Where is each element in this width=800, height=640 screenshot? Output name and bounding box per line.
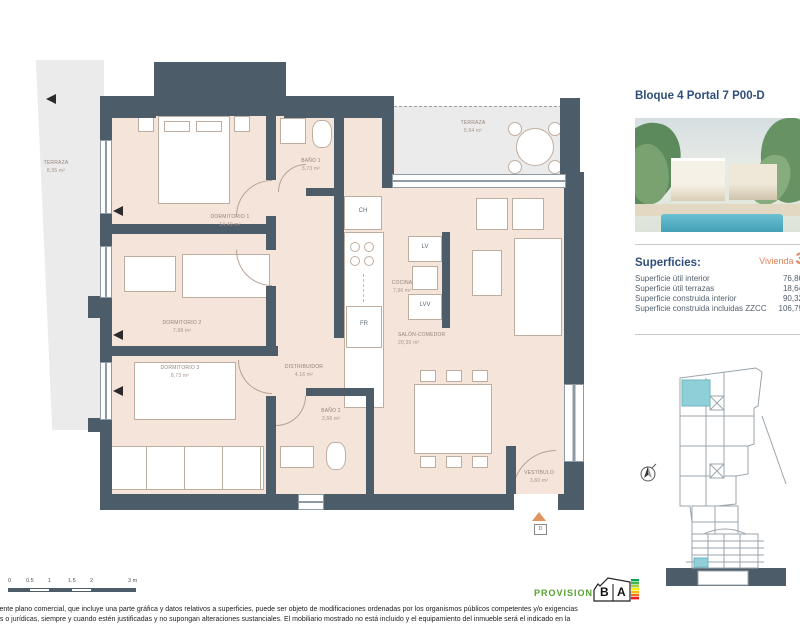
chair [446,370,462,382]
disclaimer-line: as o jurídicas, siempre y cuando estén j… [0,616,570,623]
wall [442,232,450,328]
hob [350,256,360,266]
bed [124,256,176,292]
highlighted-unit [682,380,710,406]
surface-row: Superficie útil interior76,86 [635,274,800,284]
svg-text:B: B [600,585,609,599]
window [100,140,112,214]
energy-label-icon: B A [592,576,642,603]
surface-row: Superficie construida incluidas ZZCC106,… [635,304,800,314]
sofa [514,238,562,336]
room-label-salon-comedor: SALÓN-COMEDOR20,30 m² [398,332,478,347]
room-label-bano-2: BAÑO 23,66 m² [308,408,354,423]
wall [506,446,516,494]
room-label-terraza-top: TERRAZA5,94 m² [448,120,498,135]
toilet [326,442,346,470]
window [298,494,324,510]
marker-triangle-icon [113,386,123,396]
toilet [312,120,332,148]
room-label-dormitorio-1: DORMITORIO 114,49 m² [198,214,262,229]
glass-door [392,174,566,188]
marker-triangle-icon [46,94,56,104]
wall [306,388,374,396]
armchair [512,198,544,230]
room-label-vestibulo: VESTÍBULO3,60 m² [516,470,562,485]
sink [280,446,314,468]
section-diagram [652,528,800,592]
divider [635,244,800,245]
marker-triangle-icon [113,206,123,216]
marker-triangle-icon [113,330,123,340]
pillow [164,121,190,132]
surface-row: Superficie útil terrazas18,64 [635,284,800,294]
washer-lv-label: LV [408,244,442,250]
nightstand [234,116,250,132]
entrance-door-label: D [534,524,547,535]
wall [104,346,278,356]
wall [266,286,276,356]
disclaimer-line: sente plano comercial, que incluye una p… [0,606,578,613]
coffee-table [472,250,502,296]
room-label-cocina: COCINA7,96 m² [382,280,422,295]
wardrobe [108,446,264,490]
vivienda-label: Vivienda3 [759,249,800,269]
terrace-left [30,60,104,430]
wall [266,216,276,250]
entrance-arrow-icon [532,512,546,521]
wall [334,114,344,338]
wall [324,494,514,510]
washer-lvv-label: LVV [408,302,442,308]
render-building [729,164,777,200]
wall [100,494,298,510]
chair [420,370,436,382]
room-label-distribuidor: DISTRIBUIDOR4,16 m² [276,364,332,379]
terrace-table [516,128,554,166]
fridge-box [346,306,382,348]
plan-sheet: D TERRAZA8,95 m² DORMITORIO 114,49 m² DO… [0,0,800,640]
hob [350,242,360,252]
wall [88,296,112,318]
chair [420,456,436,468]
fridge-fr-label: FR [346,321,382,327]
counter-divider [363,274,364,302]
nightstand [138,116,154,132]
wall [88,418,112,432]
wall [266,114,276,180]
hob [364,242,374,252]
window [100,246,112,298]
closet-ch-label: CH [344,208,382,214]
window [564,384,584,462]
superficies-heading: Superficies: [635,257,701,269]
scale-bar: 0 0.5 1 1.5 2 3 m [8,578,148,598]
svg-text:A: A [617,585,626,599]
chair [472,456,488,468]
render-building [671,158,725,201]
room-label-bano-1: BAÑO 13,73 m² [288,158,334,173]
room-label-dormitorio-3: DORMITORIO 38,73 m² [148,365,212,380]
highlighted-unit [694,558,708,567]
dining-table [414,384,492,454]
chair [446,456,462,468]
window [100,362,112,420]
wall [366,388,374,494]
wall [154,62,286,116]
wall [558,494,584,510]
building-render [635,118,800,232]
entrance-opening [514,494,558,510]
surface-row: Superficie construida interior90,32 [635,294,800,304]
pillow [196,121,222,132]
wall [266,396,276,494]
room-label-dormitorio-2: DORMITORIO 27,98 m² [150,320,214,335]
vivienda-number: 3 [796,249,800,268]
entrance-letter: D [539,526,543,532]
chair [472,370,488,382]
render-pool [661,214,783,232]
divider [635,334,800,335]
unit-title: Bloque 4 Portal 7 P00-D [635,90,800,102]
armchair [476,198,508,230]
hob [364,256,374,266]
surface-table: Superficie útil interior76,86 Superficie… [635,274,800,314]
terrace-chair [508,160,522,174]
room-label-terraza-left: TERRAZA8,95 m² [34,160,78,175]
sink [280,118,306,144]
north-compass-icon [641,464,656,481]
